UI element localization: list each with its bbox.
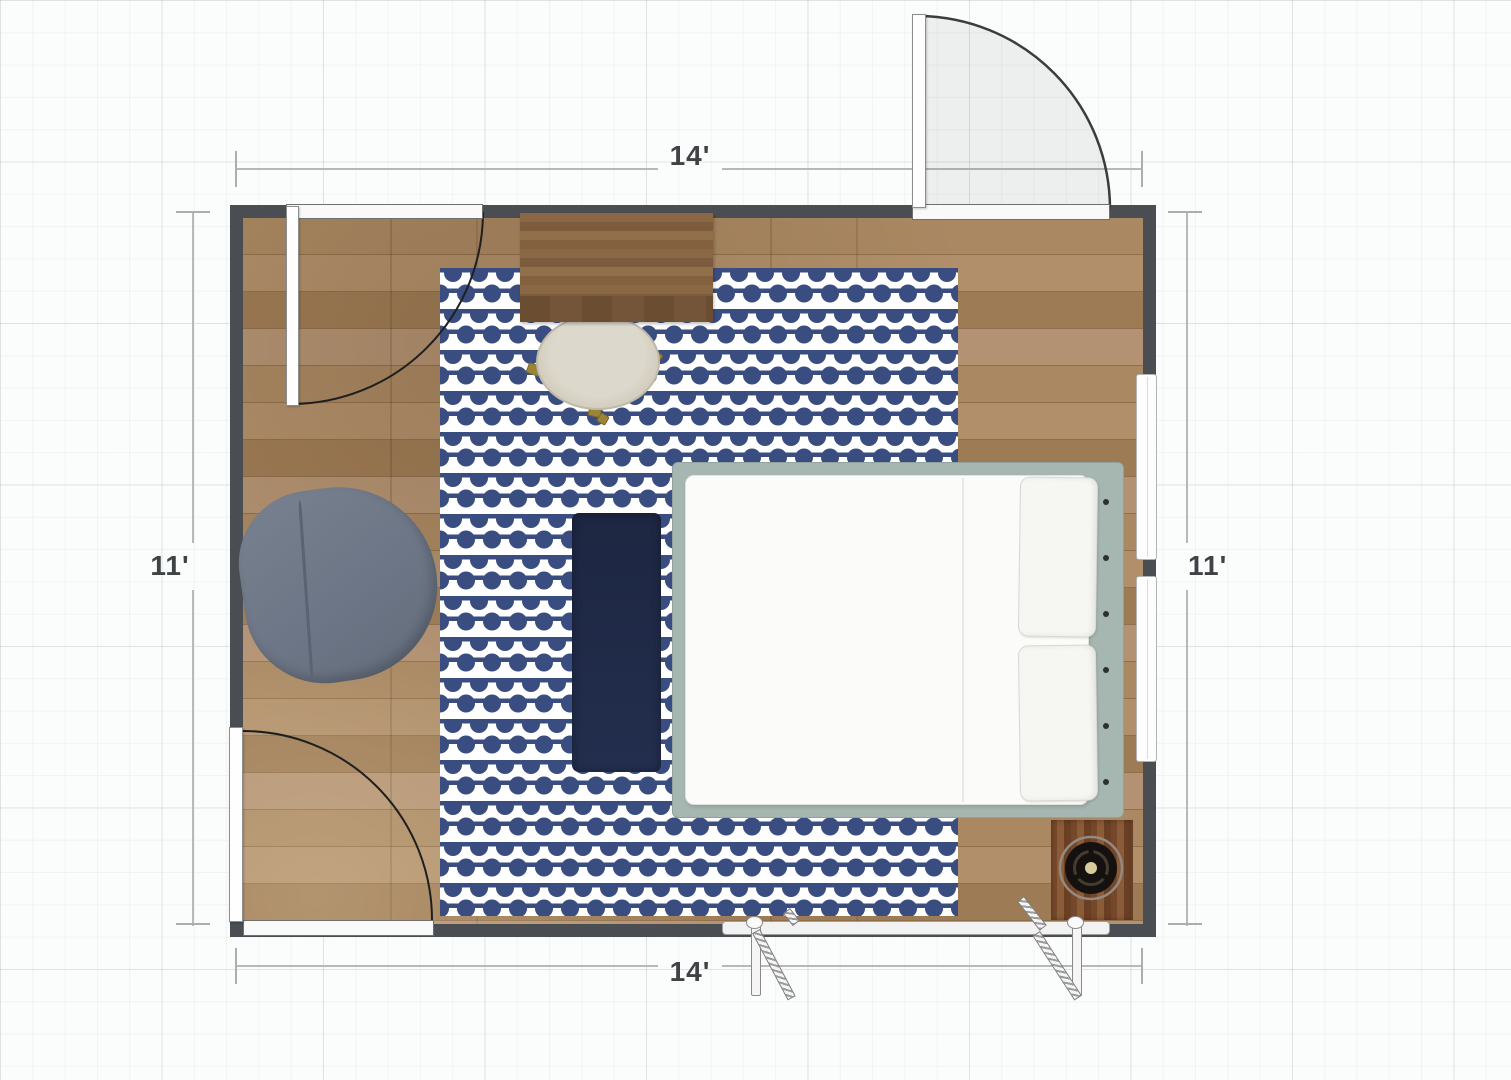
sheet-fold-line	[962, 478, 964, 802]
dimension-line-right	[1186, 590, 1188, 926]
dimension-line-top	[237, 168, 658, 170]
dimension-line-bottom	[237, 965, 658, 967]
dimension-tick	[1141, 151, 1143, 187]
dimension-tick	[235, 948, 237, 984]
runner-rug[interactable]	[572, 513, 661, 772]
exterior-door-threshold	[912, 204, 1110, 220]
dimension-label-bottom: 14'	[650, 956, 730, 988]
dimension-tick	[1168, 923, 1202, 925]
pillow	[1018, 476, 1098, 637]
dimension-tick	[176, 923, 210, 925]
speaker-cone-icon	[1051, 820, 1133, 920]
exterior-door[interactable]	[912, 14, 926, 208]
dimension-tick	[1168, 211, 1202, 213]
dimension-tick	[176, 211, 210, 213]
bed[interactable]	[672, 462, 1124, 818]
dimension-line-left	[192, 212, 194, 543]
dimension-line-right	[1186, 212, 1188, 543]
dimension-label-left: 11'	[144, 550, 196, 582]
desk-drawer-front	[520, 296, 713, 322]
top-left-door-threshold	[286, 204, 483, 219]
desk-chair[interactable]	[536, 314, 660, 410]
leaning-rack-joint	[746, 916, 763, 929]
armchair-seam	[298, 500, 313, 678]
pillow	[1018, 644, 1098, 801]
leaning-rack-bar[interactable]	[722, 921, 1110, 935]
top-left-door[interactable]	[286, 206, 299, 406]
floorplan-canvas: 14' 14' 11' 11'	[0, 0, 1511, 1080]
leaning-rack-joint	[1067, 916, 1084, 929]
dimension-label-right: 11'	[1188, 550, 1242, 582]
dimension-line-left	[192, 590, 194, 926]
dimension-line-top	[722, 168, 1142, 170]
exterior-door-swing-arc	[919, 16, 1110, 209]
dimension-tick	[1141, 948, 1143, 984]
desk[interactable]	[520, 213, 713, 322]
dimension-label-top: 14'	[650, 140, 730, 172]
window-upper[interactable]	[1136, 374, 1157, 560]
bottom-left-door-threshold	[243, 920, 434, 936]
window-lower[interactable]	[1136, 576, 1157, 762]
headboard-tufting	[1103, 499, 1111, 785]
bottom-left-door[interactable]	[229, 727, 243, 922]
exterior-door-swing-area	[919, 16, 1110, 209]
dimension-tick	[235, 151, 237, 187]
speaker[interactable]	[1051, 820, 1133, 920]
